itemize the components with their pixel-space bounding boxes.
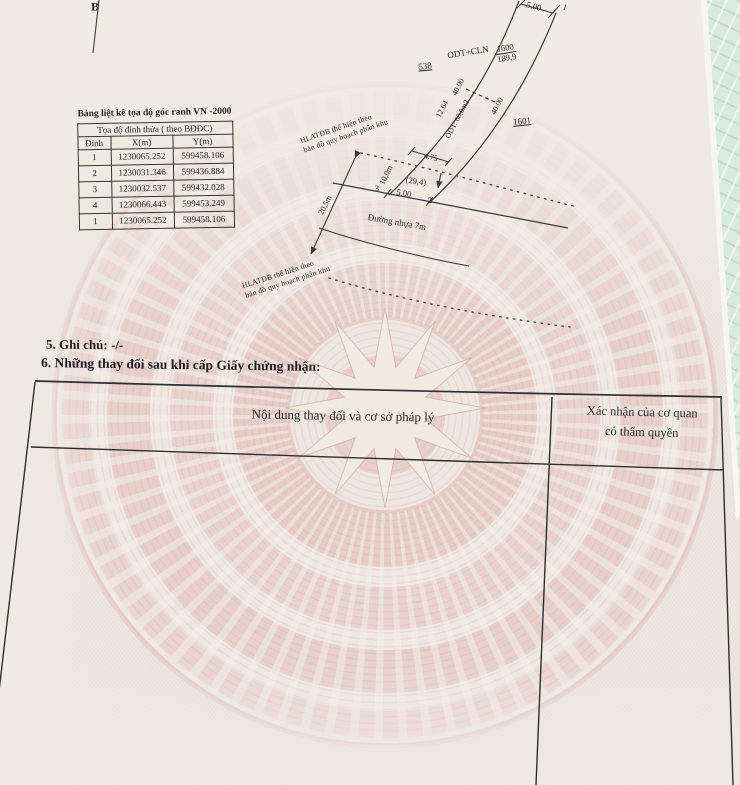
changes-table-lines [0,0,740,785]
authority-column-header: Xác nhận của cơ quan có thẩm quyền [558,400,727,444]
land-certificate-page-photo: B 5.00 1 538 ODT+CLN 1600 189,9 1601 40.… [0,0,740,785]
